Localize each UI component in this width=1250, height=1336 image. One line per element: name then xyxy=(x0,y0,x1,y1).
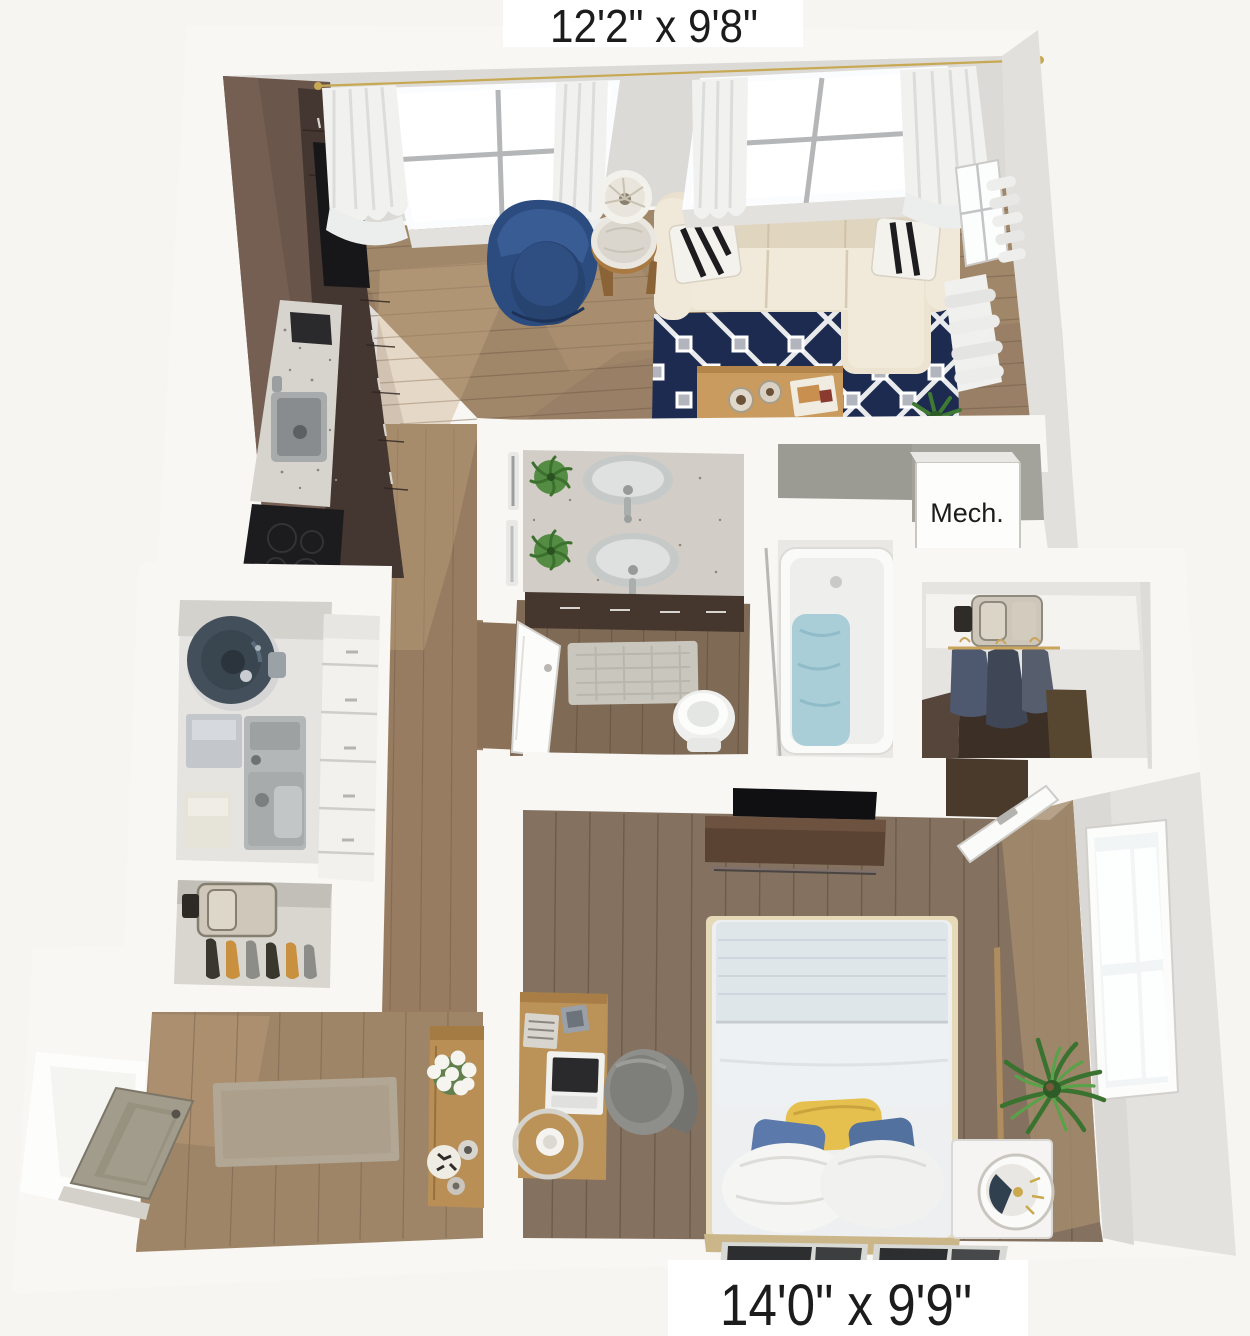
svg-text:12'2" x 9'8": 12'2" x 9'8" xyxy=(550,0,758,52)
svg-text:14'0" x 9'9": 14'0" x 9'9" xyxy=(720,1273,972,1336)
svg-text:Mech.: Mech. xyxy=(930,498,1004,528)
